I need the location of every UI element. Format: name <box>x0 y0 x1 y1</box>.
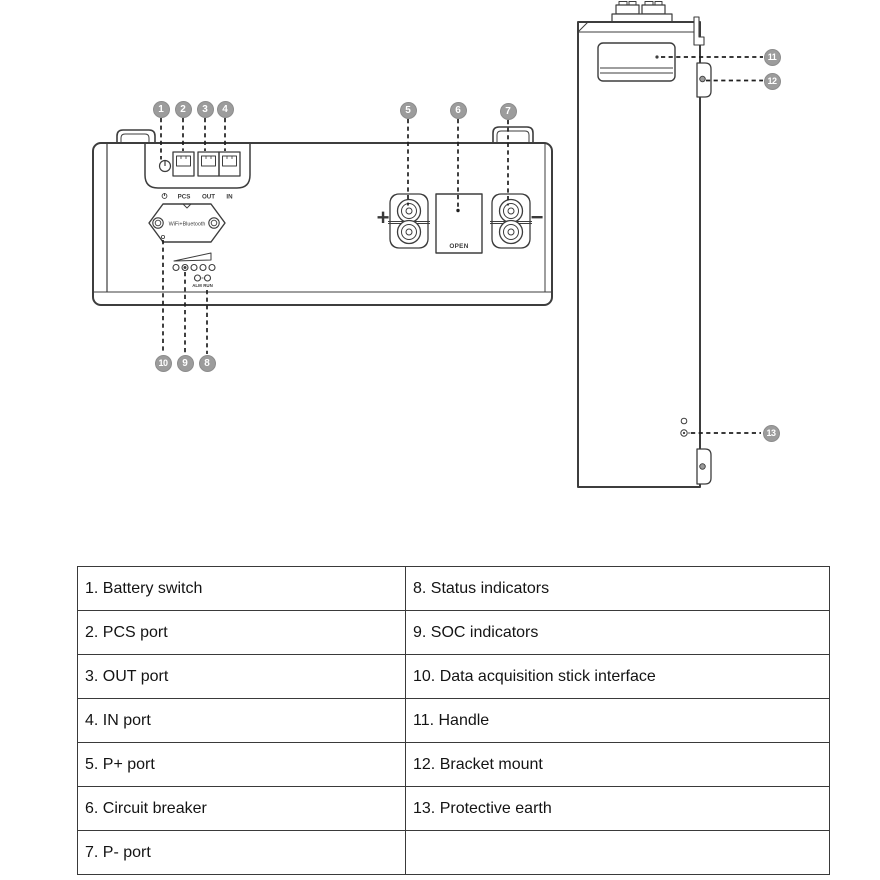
legend-cell: 6. Circuit breaker <box>78 787 406 831</box>
data-acquisition-stick-interface: WiFi+Bluetooth <box>149 204 225 242</box>
legend-cell: 12. Bracket mount <box>406 743 830 787</box>
callout-badge-1: 1 <box>153 101 170 118</box>
handle <box>598 43 675 81</box>
pcs-port-label: PCS <box>178 194 191 201</box>
callout-badge-13: 13 <box>763 425 780 442</box>
legend-table: 1. Battery switch 8. Status indicators 2… <box>77 566 830 875</box>
plus-sign: + <box>377 205 390 230</box>
legend-cell: 9. SOC indicators <box>406 611 830 655</box>
out-port-label: OUT <box>202 194 215 201</box>
legend-row: 5. P+ port 12. Bracket mount <box>78 743 830 787</box>
legend-row: 1. Battery switch 8. Status indicators <box>78 567 830 611</box>
legend-cell: 3. OUT port <box>78 655 406 699</box>
callout-badge-10: 10 <box>155 355 172 372</box>
callout-badge-11: 11 <box>764 49 781 66</box>
legend-row: 3. OUT port 10. Data acquisition stick i… <box>78 655 830 699</box>
leader-dot <box>456 209 459 212</box>
minus-sign: − <box>531 205 544 230</box>
callout-badge-9: 9 <box>177 355 194 372</box>
bracket-mount-bottom <box>697 449 711 484</box>
breaker-open-label: OPEN <box>449 243 468 250</box>
callout-badge-5: 5 <box>400 102 417 119</box>
handle-right <box>493 127 533 144</box>
callout-badge-3: 3 <box>197 101 214 118</box>
callout-badge-2: 2 <box>175 101 192 118</box>
legend-cell: 2. PCS port <box>78 611 406 655</box>
legend-cell: 7. P- port <box>78 831 406 875</box>
legend-cell: 10. Data acquisition stick interface <box>406 655 830 699</box>
legend-cell <box>406 831 830 875</box>
alm-label: ALM <box>192 283 202 288</box>
callout-badge-12: 12 <box>764 73 781 90</box>
legend-cell: 13. Protective earth <box>406 787 830 831</box>
callout-badge-6: 6 <box>450 102 467 119</box>
legend-cell: 8. Status indicators <box>406 567 830 611</box>
callout-badge-4: 4 <box>217 101 234 118</box>
side-body <box>578 22 700 487</box>
screw-icon <box>700 464 706 470</box>
side-top-terminals <box>612 2 672 23</box>
legend-row: 7. P- port <box>78 831 830 875</box>
circuit-breaker: OPEN <box>436 194 482 253</box>
handle-left <box>117 130 155 144</box>
run-label: RUN <box>203 283 213 288</box>
legend-row: 2. PCS port 9. SOC indicators <box>78 611 830 655</box>
legend-cell: 5. P+ port <box>78 743 406 787</box>
side-back-lip <box>694 17 704 45</box>
legend-row: 6. Circuit breaker 13. Protective earth <box>78 787 830 831</box>
manual-page: PCS OUT IN WiFi+Bluetooth <box>0 0 880 880</box>
legend-cell: 1. Battery switch <box>78 567 406 611</box>
side-view <box>578 2 711 488</box>
callout-badge-7: 7 <box>500 103 517 120</box>
callout-badge-8: 8 <box>199 355 216 372</box>
legend-cell: 11. Handle <box>406 699 830 743</box>
device-diagram: PCS OUT IN WiFi+Bluetooth <box>0 0 880 560</box>
in-port-label: IN <box>226 194 233 201</box>
wifi-bluetooth-label: WiFi+Bluetooth <box>169 222 206 228</box>
front-view: PCS OUT IN WiFi+Bluetooth <box>93 127 552 305</box>
legend-cell: 4. IN port <box>78 699 406 743</box>
legend-row: 4. IN port 11. Handle <box>78 699 830 743</box>
screw-icon <box>700 76 706 82</box>
